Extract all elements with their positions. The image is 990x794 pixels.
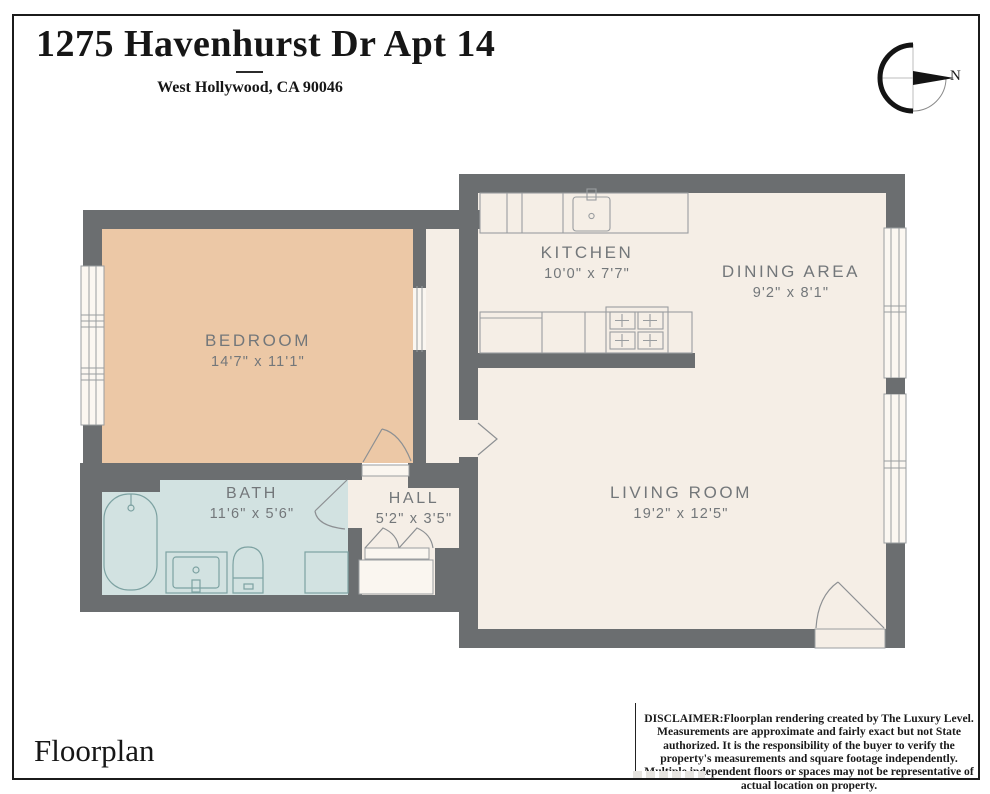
room-dims: 9'2" x 8'1" <box>722 285 860 301</box>
room-label-hall: HALL 5'2" x 3'5" <box>376 490 453 527</box>
page-title: 1275 Havenhurst Dr Apt 14 <box>36 22 495 66</box>
footer-divider <box>635 703 636 778</box>
room-dims: 11'6" x 5'6" <box>210 506 295 522</box>
compass-icon <box>878 44 954 112</box>
disclaimer-text: DISCLAIMER:Floorplan rendering created b… <box>642 712 976 792</box>
watermark-remnant <box>633 771 705 778</box>
floors <box>98 193 886 629</box>
room-label-bedroom: BEDROOM 14'7" x 11'1" <box>205 331 311 370</box>
room-name: BATH <box>210 485 295 503</box>
page: 1275 Havenhurst Dr Apt 14 West Hollywood… <box>0 0 990 794</box>
page-subtitle: West Hollywood, CA 90046 <box>150 79 350 97</box>
room-dims: 5'2" x 3'5" <box>376 511 453 527</box>
room-dims: 10'0" x 7'7" <box>541 266 634 282</box>
room-label-bath: BATH 11'6" x 5'6" <box>210 485 295 522</box>
north-arrow <box>913 71 954 85</box>
room-label-kitchen: KITCHEN 10'0" x 7'7" <box>541 243 634 282</box>
room-label-living-room: LIVING ROOM 19'2" x 12'5" <box>610 483 752 522</box>
room-dims: 14'7" x 11'1" <box>205 354 311 370</box>
room-label-dining-area: DINING AREA 9'2" x 8'1" <box>722 262 860 301</box>
room-name: LIVING ROOM <box>610 483 752 503</box>
sliding-door <box>413 286 426 352</box>
room-name: DINING AREA <box>722 262 860 282</box>
room-dims: 19'2" x 12'5" <box>610 506 752 522</box>
floorplan-svg <box>0 0 990 794</box>
room-name: HALL <box>376 490 453 508</box>
footer-floorplan-label: Floorplan <box>34 733 155 769</box>
title-divider <box>236 71 263 73</box>
room-name: BEDROOM <box>205 331 311 351</box>
compass-north-label: N <box>950 68 961 85</box>
room-name: KITCHEN <box>541 243 634 263</box>
